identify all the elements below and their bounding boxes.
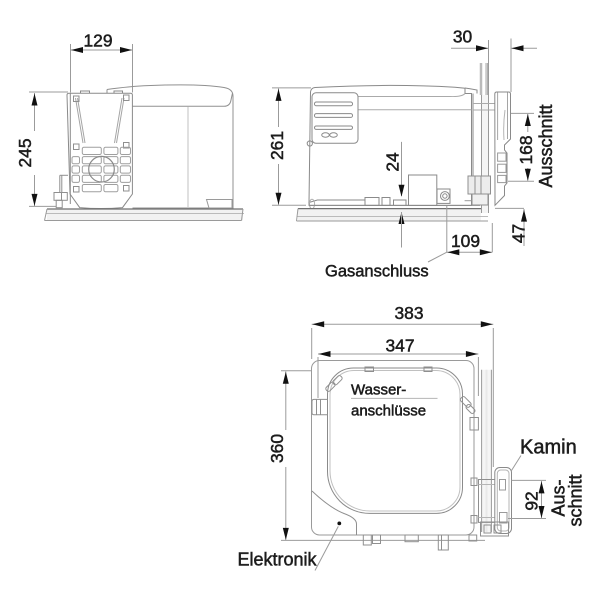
svg-text:Gasanschluss: Gasanschluss bbox=[325, 263, 429, 281]
svg-text:24: 24 bbox=[383, 152, 403, 172]
svg-text:30: 30 bbox=[453, 27, 472, 47]
svg-text:383: 383 bbox=[394, 303, 423, 323]
svg-text:261: 261 bbox=[267, 131, 287, 160]
svg-text:schnitt: schnitt bbox=[566, 474, 586, 526]
svg-text:360: 360 bbox=[267, 434, 287, 463]
svg-text:129: 129 bbox=[83, 31, 112, 51]
svg-text:Kamin: Kamin bbox=[520, 437, 577, 459]
svg-text:anschlüsse: anschlüsse bbox=[351, 403, 426, 420]
svg-text:Ausschnitt: Ausschnitt bbox=[536, 104, 556, 187]
svg-text:Wasser-: Wasser- bbox=[351, 382, 406, 399]
svg-text:Elektronik: Elektronik bbox=[238, 550, 318, 570]
svg-text:245: 245 bbox=[15, 138, 35, 167]
svg-text:92: 92 bbox=[522, 491, 542, 510]
svg-text:47: 47 bbox=[509, 224, 529, 243]
svg-text:109: 109 bbox=[451, 231, 480, 251]
svg-text:347: 347 bbox=[385, 336, 414, 356]
svg-text:168: 168 bbox=[516, 135, 536, 164]
